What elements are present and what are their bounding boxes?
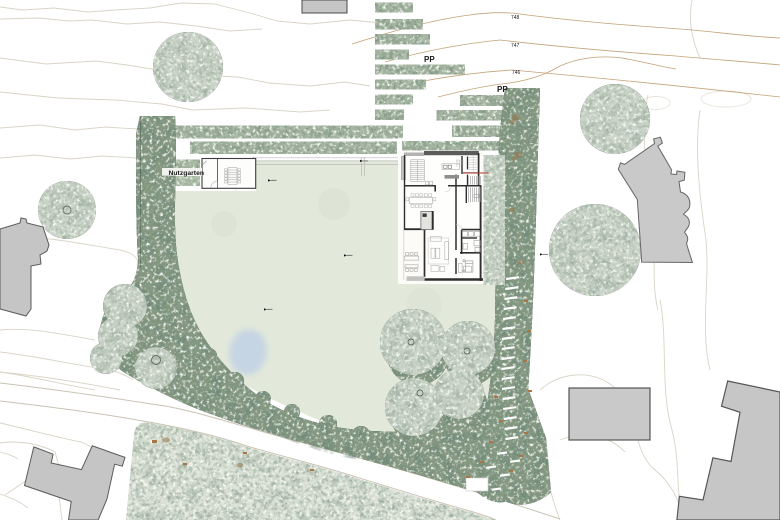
svg-text:PP: PP [497, 85, 508, 94]
svg-text:746: 746 [512, 70, 521, 76]
svg-text:PP: PP [424, 55, 435, 64]
svg-text:Nutzgarten: Nutzgarten [169, 170, 205, 177]
svg-text:748: 748 [511, 15, 520, 21]
svg-text:747: 747 [511, 43, 520, 49]
